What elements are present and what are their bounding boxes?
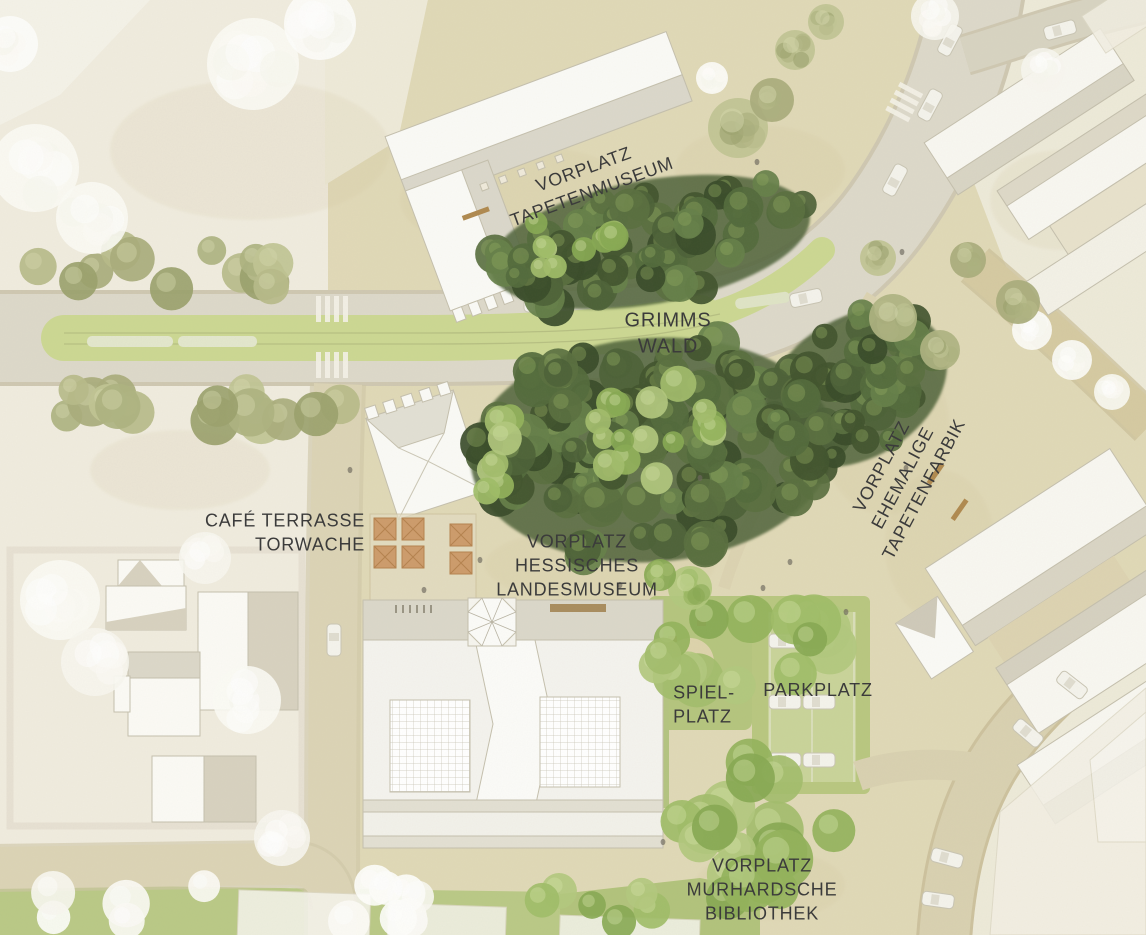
label-spielplatz: SPIEL- PLATZ — [673, 681, 735, 729]
label-cafe-terrasse-torwache: CAFÉ TERRASSE TORWACHE — [205, 509, 365, 557]
label-vorplatz-hessisches-landesmuseum: VORPLATZ HESSISCHES LANDESMUSEUM — [496, 530, 658, 601]
site-plan-canvas: VORPLATZ TAPETENMUSEUM GRIMMS WALD CAFÉ … — [0, 0, 1146, 935]
label-parkplatz: PARKPLATZ — [763, 679, 873, 703]
building-landesmuseum — [363, 598, 678, 848]
site-plan-drawing — [0, 0, 1146, 935]
label-vorplatz-murhardsche-bibliothek: VORPLATZ MURHARDSCHE BIBLIOTHEK — [687, 854, 838, 925]
label-grimms-wald: GRIMMS WALD — [624, 308, 711, 361]
